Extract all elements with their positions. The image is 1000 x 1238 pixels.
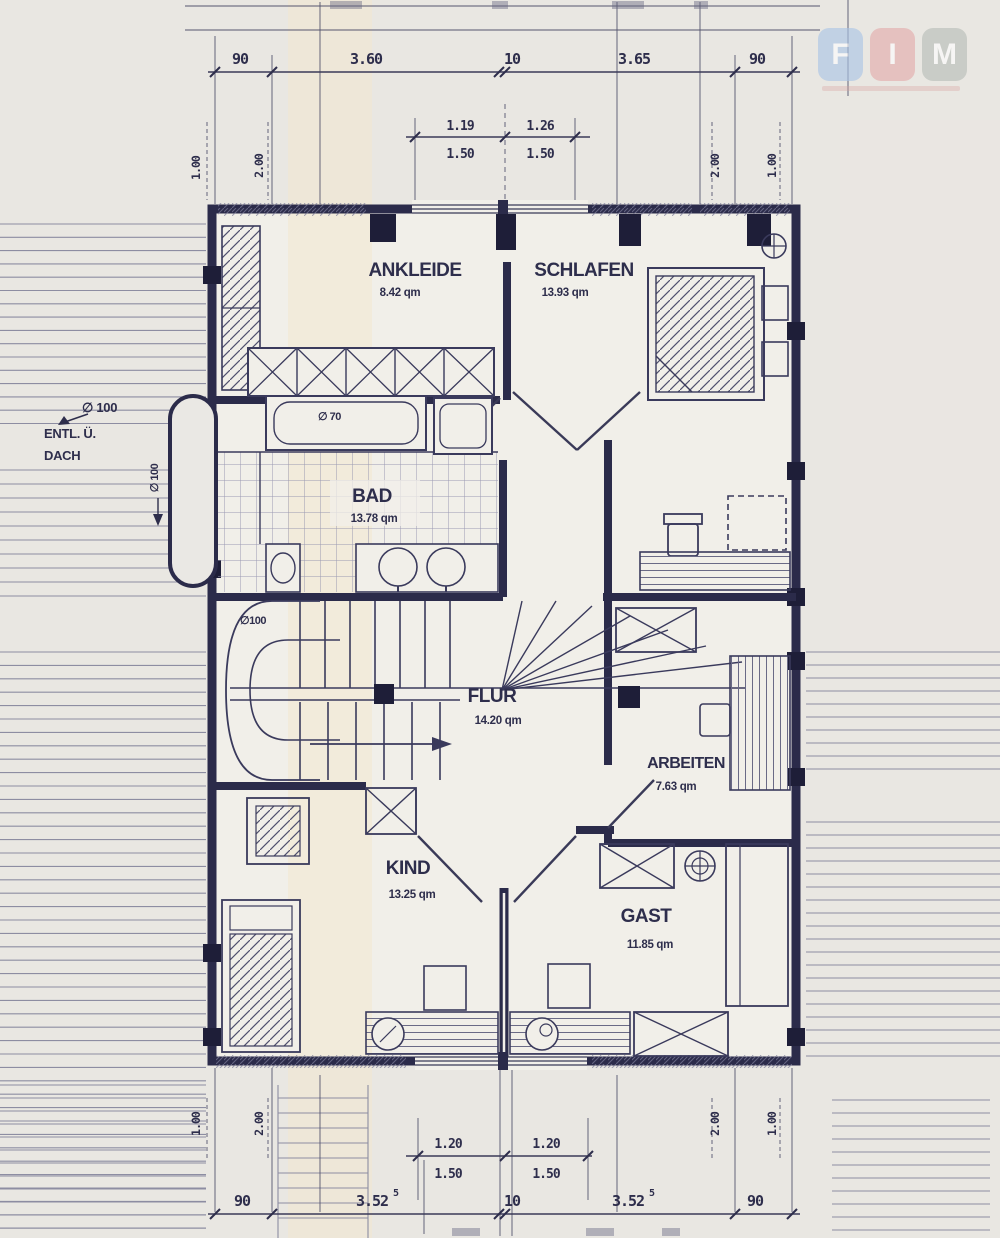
- fim-logo-letter-f: F: [818, 28, 863, 81]
- dim-right-inner: 2.00: [708, 153, 722, 178]
- vent-label-line1: ENTL. Ü.: [44, 426, 96, 441]
- label-ankleide: ANKLEIDE: [368, 260, 461, 281]
- dim-window-h2: 1.50: [526, 147, 554, 162]
- dim-bottom-2: 3.52: [356, 1192, 388, 1210]
- dim-bwindow-w1: 1.20: [434, 1137, 462, 1152]
- dim-right-outer: 1.00: [765, 153, 779, 178]
- kind-stool: [372, 1018, 404, 1050]
- dim-top-2: 3.60: [350, 50, 383, 68]
- dim-bwindow-w2: 1.20: [532, 1137, 560, 1152]
- dim-left-inner: 2.00: [252, 153, 266, 178]
- label-gast: GAST: [621, 906, 673, 927]
- stair-dia-label: ∅100: [240, 615, 266, 627]
- gast-stool: [526, 1018, 558, 1050]
- ceiling-fan-symbol: [762, 234, 786, 258]
- dim-bottom-2-sup: 5: [393, 1188, 399, 1199]
- label-bad: BAD: [352, 486, 392, 507]
- wc: [266, 544, 300, 592]
- area-schlafen: 13.93 qm: [542, 287, 589, 299]
- dim-br-inner: 2.00: [708, 1111, 722, 1136]
- dim-top-4: 3.65: [618, 50, 651, 68]
- area-flur: 14.20 qm: [475, 715, 522, 727]
- dim-bottom-4-sup: 5: [649, 1188, 655, 1199]
- dim-top-3: 10: [504, 50, 521, 68]
- dim-top-5: 90: [749, 50, 766, 68]
- area-bad: 13.78 qm: [351, 513, 398, 525]
- kind-bed: [222, 900, 300, 1052]
- blueprint-sheet: 90 3.60 10 3.65 90 1.19 1.50 1.26 1.50 1…: [0, 0, 1000, 1238]
- floor-plan: 90 3.60 10 3.65 90 1.19 1.50 1.26 1.50 1…: [0, 0, 1000, 1238]
- column-1: [374, 684, 394, 704]
- dim-window-h1: 1.50: [446, 147, 474, 162]
- scan-tint-right: [840, 120, 1000, 660]
- arbeiten-desk: [730, 656, 790, 790]
- dim-br-outer: 1.00: [765, 1111, 779, 1136]
- dim-bottom-5: 90: [747, 1192, 764, 1210]
- vent-dia-label: ∅ 100: [82, 400, 117, 415]
- double-bed: [648, 268, 764, 400]
- dim-bottom-4: 3.52: [612, 1192, 644, 1210]
- label-flur: FLUR: [468, 686, 517, 707]
- area-arbeiten: 7.63 qm: [656, 781, 697, 793]
- area-ankleide: 8.42 qm: [380, 287, 421, 299]
- fim-logo-letter-m: M: [922, 28, 967, 81]
- vent-stack: [170, 396, 216, 586]
- fim-logo-letter-i: I: [870, 28, 915, 81]
- dim-bwindow-h2: 1.50: [532, 1167, 560, 1182]
- dim-left-outer: 1.00: [189, 155, 203, 180]
- dim-window-w1: 1.19: [446, 119, 473, 134]
- dim-bl-outer: 1.00: [189, 1111, 203, 1136]
- dim-bl-inner: 2.00: [252, 1111, 266, 1136]
- fim-logo-tiles: F I M: [818, 28, 978, 81]
- vent-dia-side-label: ∅ 100: [149, 463, 161, 492]
- label-arbeiten: ARBEITEN: [647, 755, 725, 772]
- vanity-basins: [356, 544, 498, 592]
- shower: [434, 398, 492, 454]
- ankleide-wardrobe: [248, 348, 494, 396]
- schlafen-bench: [640, 552, 790, 590]
- dim-top-1: 90: [232, 50, 249, 68]
- bathtub: [266, 396, 426, 450]
- label-kind: KIND: [386, 858, 430, 879]
- dim-bottom-1: 90: [234, 1192, 251, 1210]
- dim-bottom-3: 10: [504, 1192, 521, 1210]
- column-2: [618, 686, 640, 708]
- fim-logo: F I M: [818, 28, 978, 98]
- dim-bwindow-h1: 1.50: [434, 1167, 462, 1182]
- fim-logo-tagline: [822, 86, 960, 91]
- tub-dia-label: ∅ 70: [318, 411, 341, 423]
- area-gast: 11.85 qm: [627, 939, 673, 951]
- area-kind: 13.25 qm: [389, 889, 436, 901]
- gast-lamp-symbol: [685, 851, 715, 881]
- label-schlafen: SCHLAFEN: [534, 260, 633, 281]
- kind-cabinet: [247, 798, 309, 864]
- dim-window-w2: 1.26: [526, 119, 554, 134]
- vent-label-line2: DACH: [44, 448, 80, 463]
